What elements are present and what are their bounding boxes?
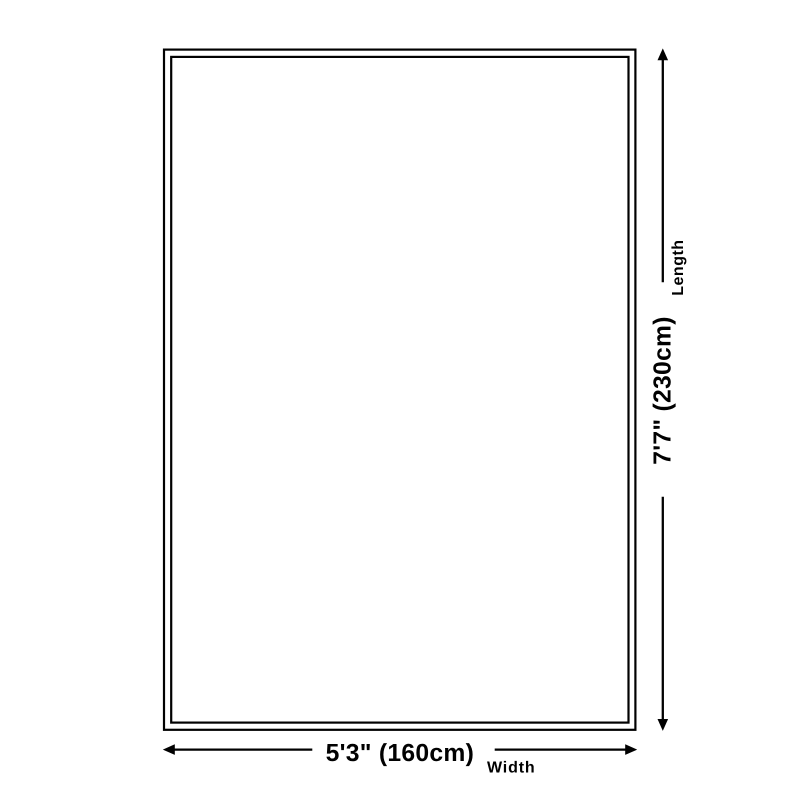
svg-text:Width: Width <box>487 759 536 776</box>
svg-text:Length: Length <box>670 239 687 295</box>
svg-text:5'3" (160cm): 5'3" (160cm) <box>326 740 474 767</box>
svg-text:7'7" (230cm): 7'7" (230cm) <box>650 316 677 464</box>
